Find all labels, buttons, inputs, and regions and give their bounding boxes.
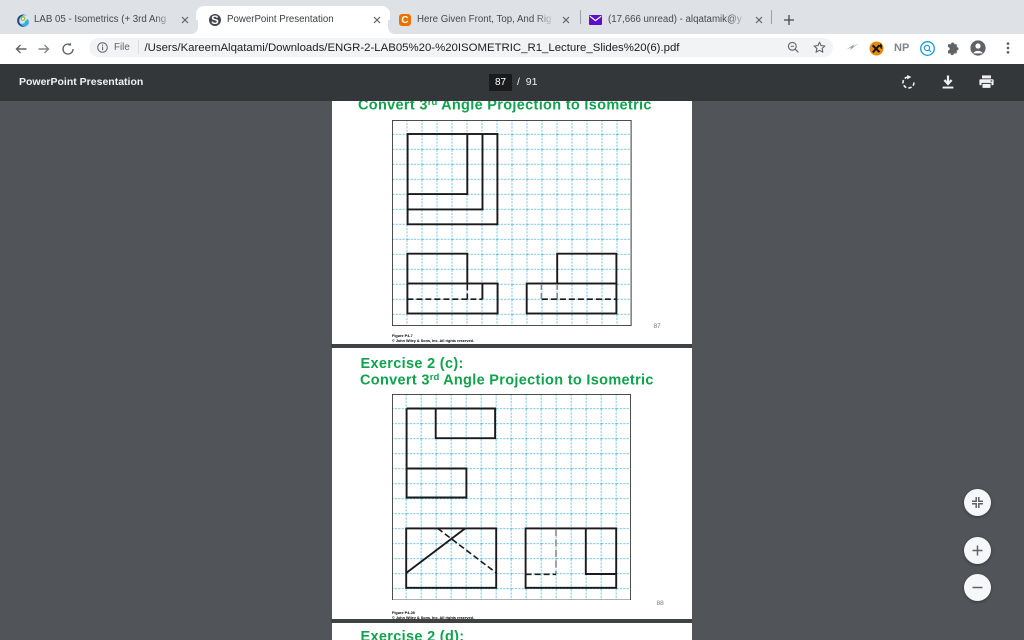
svg-text:S: S — [211, 15, 219, 26]
